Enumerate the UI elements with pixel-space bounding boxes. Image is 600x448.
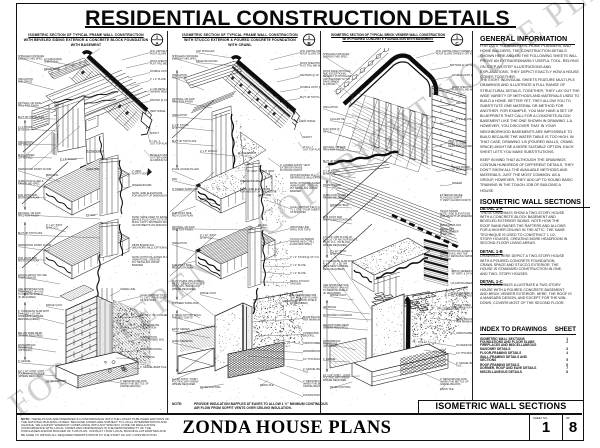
svg-text:WINDOW HEAD: WINDOW HEAD (330, 204, 349, 207)
svg-text:BARRIER: BARRIER (132, 264, 143, 267)
svg-text:& BRIGHT MID SPEC: & BRIGHT MID SPEC (172, 58, 197, 61)
svg-text:GUT TOP PLATE: GUT TOP PLATE (150, 143, 167, 146)
svg-text:DOUBLE JOINT @ 16" O.C.: DOUBLE JOINT @ 16" O.C. (452, 74, 472, 77)
svg-text:FREEZE BOARD: FREEZE BOARD (240, 180, 260, 183)
svg-text:RAFTERS @ 16" O.C.: RAFTERS @ 16" O.C. (300, 74, 320, 77)
svg-text:4" GRAVEL: 4" GRAVEL (18, 360, 32, 363)
svg-text:HARDWOOD FINISH FLOOR: HARDWOOD FINISH FLOOR (18, 244, 52, 247)
svg-text:EXIST GIRDER: EXIST GIRDER (172, 328, 190, 331)
svg-text:MID FLOOR PLAN: MID FLOOR PLAN (172, 267, 193, 270)
svg-text:AIR SPACE: AIR SPACE (323, 306, 336, 309)
svg-text:ADJUSTMENTS ON SPECIFICATIONS: ADJUSTMENTS ON SPECIFICATIONS (132, 224, 167, 227)
svg-text:PLYWOOD SOFFIT: PLYWOOD SOFFIT (280, 169, 303, 172)
svg-text:UNDISTURBED SOIL: UNDISTURBED SOIL (456, 332, 472, 335)
svg-text:2" x 6" FASCIA: 2" x 6" FASCIA (200, 150, 217, 153)
svg-text:1/2" THICKING: 1/2" THICKING (303, 358, 320, 361)
svg-text:FREEZE: FREEZE (452, 182, 462, 185)
svg-text:UP MID SPEC: UP MID SPEC (140, 299, 156, 302)
svg-text:DOUBLE JOIST @ 16" O.C.: DOUBLE JOIST @ 16" O.C. (300, 86, 320, 89)
svg-text:W" VERT. & 24" HORIZ.: W" VERT. & 24" HORIZ. (452, 273, 472, 276)
svg-text:COLLAR TIE: COLLAR TIE (330, 118, 345, 121)
svg-text:W/ VENT SOFFIT VENT: W/ VENT SOFFIT VENT (452, 169, 472, 172)
svg-text:DOUBLE JOIST @ 16" O.C.: DOUBLE JOIST @ 16" O.C. (150, 70, 167, 73)
svg-text:2" x 4" STUDS @ 16" O.C.: 2" x 4" STUDS @ 16" O.C. (290, 256, 320, 259)
svg-text:(WHERE REQUIRED): (WHERE REQUIRED) (150, 91, 167, 94)
svg-text:INSULATION: INSULATION (172, 242, 187, 245)
svg-text:INSULATION: INSULATION (172, 114, 187, 117)
svg-text:@ 16" O.C.: @ 16" O.C. (440, 233, 453, 236)
svg-text:CAP SHINGLES: CAP SHINGLES (100, 48, 119, 49)
svg-text:JOIST HGR: JOIST HGR (86, 168, 99, 171)
svg-text:CAP SHINGLES: CAP SHINGLES (196, 50, 215, 53)
svg-text:PARGE COAT: PARGE COAT (200, 292, 216, 295)
svg-text:1: 1 (456, 35, 459, 40)
svg-text:GROUND: GROUND (290, 283, 301, 286)
svg-text:BRICK ROWLOCK: BRICK ROWLOCK (440, 224, 462, 227)
svg-text:FOR WEIGHT UP DIMENSIONS: FOR WEIGHT UP DIMENSIONS (132, 195, 167, 198)
svg-text:FREEZE BOARD: FREEZE BOARD (132, 184, 152, 187)
svg-text:RAFTER: RAFTER (456, 102, 466, 105)
svg-text:FLASHING: FLASHING (323, 83, 336, 86)
svg-text:TILE: TILE (303, 371, 309, 374)
svg-text:& BRIGHT MID SPEC: & BRIGHT MID SPEC (18, 58, 43, 61)
svg-text:PAD: PAD (172, 178, 177, 181)
svg-text:TILE: TILE (456, 365, 462, 368)
svg-text:VENT RIDGE: VENT RIDGE (150, 110, 166, 113)
svg-text:RIDGE VENT: RIDGE VENT (44, 68, 60, 71)
svg-text:BRIDGING: BRIDGING (46, 174, 58, 177)
svg-text:GRAVEL BELOW): GRAVEL BELOW) (303, 385, 320, 388)
svg-text:ALUMINUM SOFFIT: ALUMINUM SOFFIT (150, 159, 167, 162)
svg-text:DRAIN TILE: DRAIN TILE (260, 384, 274, 387)
svg-text:2" x 4" PLATE: 2" x 4" PLATE (290, 264, 306, 267)
svg-text:FLASHING/WEEP (WHERE REQUIRED): FLASHING/WEEP (WHERE REQUIRED) (452, 282, 472, 285)
svg-text:(MID-WORK MILL) (OPTIONAL): (MID-WORK MILL) (OPTIONAL) (132, 247, 167, 250)
svg-text:2" x 4" PLATE: 2" x 4" PLATE (456, 118, 472, 121)
svg-text:FOAM (JAYER) FILLER: FOAM (JAYER) FILLER (172, 168, 199, 171)
svg-text:PARGE COAT: PARGE COAT (330, 294, 346, 297)
svg-text:PLAT TRIL MID APRIL: PLAT TRIL MID APRIL (452, 89, 472, 92)
svg-text:& AND (MID SPEC): & AND (MID SPEC) (290, 243, 312, 246)
svg-text:GRADE LINE: GRADE LINE (444, 308, 459, 311)
svg-text:PER MINIMUM: PER MINIMUM (456, 321, 472, 324)
svg-text:BLVT UP TOP PLATE: BLVT UP TOP PLATE (300, 96, 320, 99)
svg-text:PER MINIMUM: PER MINIMUM (303, 319, 320, 322)
svg-text:1: 1 (308, 35, 311, 40)
svg-text:PLAT TRIL MID APRIL: PLAT TRIL MID APRIL (300, 65, 320, 68)
svg-text:1: 1 (155, 35, 158, 40)
svg-text:2" x 4" PLATE: 2" x 4" PLATE (290, 272, 306, 275)
svg-text:NO REINFORCEMENT: NO REINFORCEMENT (456, 344, 472, 347)
svg-text:UP MID SPEC: UP MID SPEC (290, 211, 306, 214)
svg-text:UNDISTURBED SOIL: UNDISTURBED SOIL (303, 342, 320, 345)
svg-text:4" GRAVEL BEDS TILE: 4" GRAVEL BEDS TILE (140, 366, 167, 369)
svg-text:BLVT UP TOP PLATE: BLVT UP TOP PLATE (18, 232, 43, 235)
svg-text:UNDISTURBED SOIL: UNDISTURBED SOIL (140, 339, 165, 342)
svg-text:(WHERE REQUIRED): (WHERE REQUIRED) (18, 375, 43, 378)
svg-text:1" THICKING: 1" THICKING (140, 356, 155, 359)
svg-text:(IF REQUIRED): (IF REQUIRED) (18, 296, 36, 299)
svg-text:BEDS REQUIRED): BEDS REQUIRED) (18, 318, 40, 321)
svg-text:GRADE LINE: GRADE LINE (282, 300, 297, 303)
svg-text:GUT TOP PLATE: GUT TOP PLATE (303, 149, 320, 152)
svg-text:4" TWEED SUBFLOOR: 4" TWEED SUBFLOOR (172, 302, 199, 305)
svg-text:TRASH FLOOR: TRASH FLOOR (323, 184, 341, 187)
svg-text:BATTENS @ 16" O.C.: BATTENS @ 16" O.C. (450, 64, 472, 67)
svg-text:(OPTIONAL): (OPTIONAL) (323, 345, 337, 348)
svg-text:FOUNDATION: FOUNDATION (140, 327, 157, 330)
svg-text:SOFFIT: SOFFIT (150, 132, 159, 135)
svg-text:ROOF SLOPE THREE-K OPTION: ROOF SLOPE THREE-K OPTION (436, 53, 472, 56)
svg-text:HEAD GUM (ALUMIN): HEAD GUM (ALUMIN) (448, 145, 472, 148)
svg-text:INSULATION: INSULATION (323, 106, 338, 109)
svg-text:THE RED JOINTS: THE RED JOINTS (172, 317, 193, 320)
svg-text:BARRIER: BARRIER (440, 258, 451, 261)
svg-text:WATERPROOFING: WATERPROOFING (303, 350, 320, 353)
svg-text:WHERE REQUIRED: WHERE REQUIRED (172, 383, 195, 386)
svg-text:@ 16" O.C.: @ 16" O.C. (172, 127, 185, 130)
svg-text:RIDGE BLOCKING: RIDGE BLOCKING (196, 60, 218, 63)
svg-text:SOFFIT BEARING: SOFFIT BEARING (172, 340, 193, 343)
svg-text:MID FLOOR PLAN: MID FLOOR PLAN (18, 260, 39, 263)
svg-text:ROOF SLOPE THREE-K OPTION: ROOF SLOPE THREE-K OPTION (300, 53, 320, 56)
svg-text:HARDWOOD FINISH FLOOR: HARDWOOD FINISH FLOOR (18, 168, 52, 171)
svg-text:VENT RIDGE: VENT RIDGE (300, 120, 316, 123)
svg-text:MID FLOOR PLAN: MID FLOOR PLAN (172, 215, 193, 218)
svg-text:P.T. SILL: P.T. SILL (258, 224, 268, 227)
svg-text:2" VENT SOFFIT VENT: 2" VENT SOFFIT VENT (248, 170, 275, 173)
svg-text:FOR WEIGHT UP DIMENSIONS: FOR WEIGHT UP DIMENSIONS (440, 215, 472, 218)
svg-text:BARRIER: BARRIER (290, 190, 301, 193)
svg-text:WHERE REQUIRED): WHERE REQUIRED) (323, 244, 347, 247)
svg-text:1/2" OF 1" OF CONCRETE BLOCK: 1/2" OF 1" OF CONCRETE BLOCK (140, 314, 167, 317)
svg-text:BLVT UP TOP PLATE: BLVT UP TOP PLATE (172, 140, 197, 143)
svg-text:WHERE REQUIRED: WHERE REQUIRED (323, 379, 346, 382)
svg-text:GRAVEL BELOW): GRAVEL BELOW) (440, 383, 461, 386)
svg-text:BRIDGING: BRIDGING (200, 198, 212, 201)
svg-text:JOIST HGR: JOIST HGR (258, 194, 271, 197)
svg-text:BEDS REQUIRED): BEDS REQUIRED) (323, 268, 345, 271)
svg-text:(OPTIONAL): (OPTIONAL) (18, 349, 32, 352)
svg-text:PARGE COAT: PARGE COAT (46, 304, 62, 307)
svg-text:(2" AIRWAY) AND BRICK: (2" AIRWAY) AND BRICK (452, 295, 472, 298)
svg-text:ROOF SLOPE THREE-K OPTION: ROOF SLOPE THREE-K OPTION (150, 53, 167, 56)
svg-text:SOFFIT VENT: SOFFIT VENT (132, 173, 149, 176)
svg-text:APRIL FOR TOPS: APRIL FOR TOPS (290, 229, 311, 232)
svg-text:BACKFILL: BACKFILL (303, 335, 315, 338)
svg-text:FOUNDATION/FOOT: FOUNDATION/FOOT (303, 394, 320, 397)
svg-text:WHERE REQUIRED): WHERE REQUIRED) (172, 288, 196, 291)
svg-text:2" x 4" PLATE: 2" x 4" PLATE (150, 78, 166, 81)
svg-text:RAFTER @ 16" O.C.: RAFTER @ 16" O.C. (150, 99, 167, 102)
svg-text:PLAT TRIL MID APRIL: PLAT TRIL MID APRIL (150, 63, 167, 66)
svg-text:1/2" THICKING: 1/2" THICKING (456, 352, 472, 355)
svg-text:3" VENT (ALUMIN SOFFIT): 3" VENT (ALUMIN SOFFIT) (440, 199, 471, 202)
svg-text:AND SPACE: AND SPACE (172, 77, 187, 80)
svg-text:GRADE LINE: GRADE LINE (120, 288, 135, 291)
svg-text:SOFFIT: SOFFIT (303, 136, 312, 139)
svg-text:PLYWD SOFFIT: PLYWD SOFFIT (238, 152, 257, 155)
svg-text:W/ POURED CONCRETE: W/ POURED CONCRETE (323, 314, 353, 317)
svg-text:REFERENCE (MIL) (OPTIONAL): REFERENCE (MIL) (OPTIONAL) (290, 177, 320, 180)
